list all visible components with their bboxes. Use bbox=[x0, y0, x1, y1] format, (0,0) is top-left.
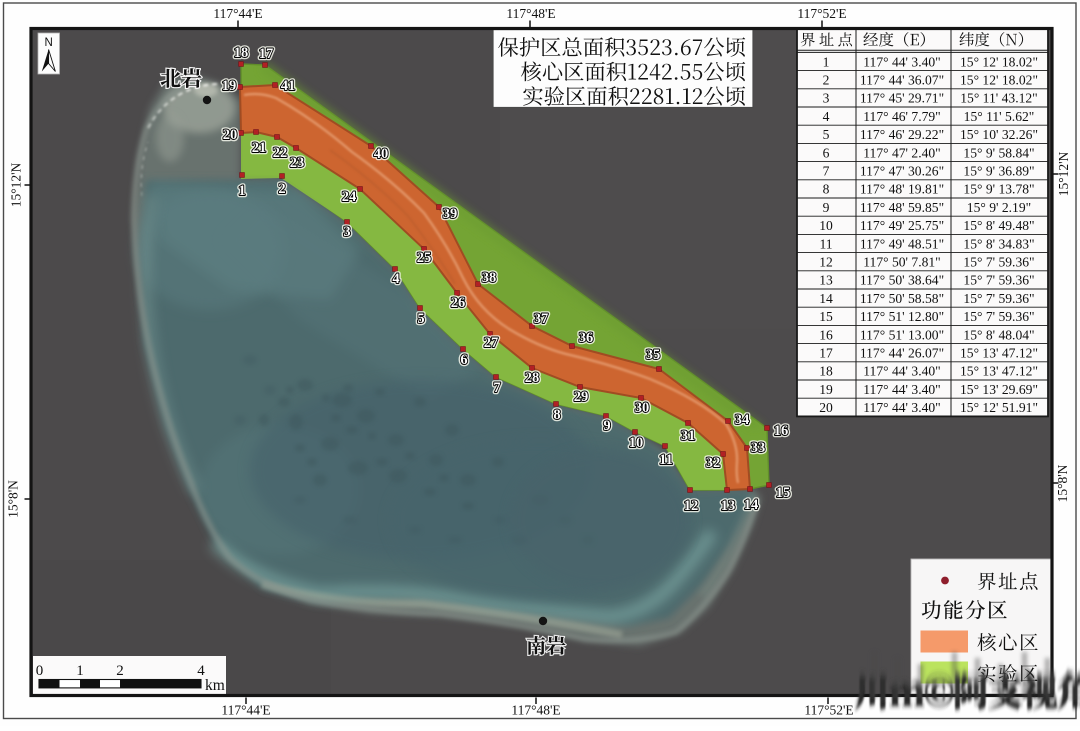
svg-text:3: 3 bbox=[823, 91, 830, 106]
svg-text:15°8'N: 15°8'N bbox=[1055, 464, 1070, 502]
svg-text:18: 18 bbox=[819, 364, 833, 379]
svg-text:15° 12' 51.91": 15° 12' 51.91" bbox=[960, 400, 1038, 415]
svg-text:35: 35 bbox=[646, 347, 661, 363]
svg-text:15° 13' 29.69": 15° 13' 29.69" bbox=[960, 382, 1038, 397]
svg-text:4: 4 bbox=[823, 109, 830, 124]
svg-text:117°44'E: 117°44'E bbox=[213, 6, 262, 21]
svg-text:6: 6 bbox=[460, 352, 467, 368]
svg-text:8: 8 bbox=[553, 407, 560, 423]
svg-text:41: 41 bbox=[281, 78, 296, 94]
svg-text:15°8'N: 15°8'N bbox=[6, 480, 21, 518]
svg-text:15° 9' 2.19": 15° 9' 2.19" bbox=[967, 200, 1031, 215]
svg-text:20: 20 bbox=[819, 400, 833, 415]
svg-text:34: 34 bbox=[735, 412, 750, 428]
svg-text:11: 11 bbox=[819, 236, 832, 251]
svg-text:16: 16 bbox=[774, 423, 789, 439]
svg-text:15° 10' 32.26": 15° 10' 32.26" bbox=[960, 127, 1038, 142]
svg-text:33: 33 bbox=[751, 440, 766, 456]
svg-text:28: 28 bbox=[525, 370, 540, 386]
svg-text:117° 51' 12.80": 117° 51' 12.80" bbox=[860, 309, 944, 324]
svg-text:117° 47' 30.26": 117° 47' 30.26" bbox=[860, 164, 944, 179]
svg-text:117° 49' 48.51": 117° 49' 48.51" bbox=[860, 236, 944, 251]
svg-text:18: 18 bbox=[234, 45, 249, 61]
svg-text:38: 38 bbox=[482, 270, 497, 286]
svg-text:117° 44' 3.40": 117° 44' 3.40" bbox=[863, 364, 941, 379]
svg-text:19: 19 bbox=[819, 382, 833, 397]
svg-text:15° 8' 49.48": 15° 8' 49.48" bbox=[963, 218, 1034, 233]
svg-text:15° 11' 43.12": 15° 11' 43.12" bbox=[960, 91, 1038, 106]
svg-text:30: 30 bbox=[635, 400, 650, 416]
svg-text:7: 7 bbox=[493, 380, 500, 396]
svg-text:14: 14 bbox=[744, 497, 759, 513]
svg-text:4: 4 bbox=[392, 271, 399, 287]
svg-text:15° 11' 5.62": 15° 11' 5.62" bbox=[964, 109, 1035, 124]
svg-text:21: 21 bbox=[252, 140, 267, 156]
svg-text:15° 9' 13.78": 15° 9' 13.78" bbox=[963, 182, 1034, 197]
svg-text:1: 1 bbox=[823, 54, 830, 69]
svg-text:km: km bbox=[205, 677, 225, 694]
svg-text:15° 13' 47.12": 15° 13' 47.12" bbox=[960, 364, 1038, 379]
svg-text:3: 3 bbox=[343, 224, 350, 240]
svg-text:31: 31 bbox=[681, 428, 696, 444]
svg-text:19: 19 bbox=[222, 78, 237, 94]
svg-text:0: 0 bbox=[36, 663, 44, 679]
svg-text:117° 47' 2.40": 117° 47' 2.40" bbox=[863, 145, 941, 160]
svg-text:117° 44' 3.40": 117° 44' 3.40" bbox=[863, 382, 941, 397]
svg-text:20: 20 bbox=[223, 127, 238, 143]
svg-text:15°12'N: 15°12'N bbox=[1056, 151, 1071, 196]
svg-text:27: 27 bbox=[484, 335, 499, 351]
svg-text:15° 13' 47.12": 15° 13' 47.12" bbox=[960, 346, 1038, 361]
svg-text:117° 45' 29.71": 117° 45' 29.71" bbox=[860, 91, 944, 106]
svg-text:29: 29 bbox=[574, 389, 589, 405]
svg-text:2: 2 bbox=[278, 181, 285, 197]
svg-text:117° 44' 3.40": 117° 44' 3.40" bbox=[863, 400, 941, 415]
svg-text:13: 13 bbox=[721, 498, 736, 514]
svg-text:15° 9' 58.84": 15° 9' 58.84" bbox=[963, 145, 1034, 160]
svg-text:11: 11 bbox=[659, 452, 673, 468]
svg-text:6: 6 bbox=[823, 145, 830, 160]
svg-text:12: 12 bbox=[684, 498, 699, 514]
svg-text:40: 40 bbox=[374, 146, 389, 162]
svg-text:9: 9 bbox=[823, 200, 830, 215]
svg-text:15° 7' 59.36": 15° 7' 59.36" bbox=[963, 273, 1034, 288]
svg-text:117° 46' 29.22": 117° 46' 29.22" bbox=[860, 127, 944, 142]
svg-text:15° 8' 48.04": 15° 8' 48.04" bbox=[963, 327, 1034, 342]
svg-text:15° 9' 36.89": 15° 9' 36.89" bbox=[963, 164, 1034, 179]
svg-text:117°48'E: 117°48'E bbox=[511, 703, 560, 718]
svg-text:15: 15 bbox=[819, 309, 833, 324]
svg-text:1: 1 bbox=[238, 183, 245, 199]
svg-text:117° 44' 36.07": 117° 44' 36.07" bbox=[860, 73, 944, 88]
svg-text:23: 23 bbox=[290, 155, 305, 171]
svg-text:117° 49' 25.75": 117° 49' 25.75" bbox=[860, 218, 944, 233]
svg-text:17: 17 bbox=[259, 46, 274, 62]
svg-text:2: 2 bbox=[823, 73, 830, 88]
svg-text:117° 48' 59.85": 117° 48' 59.85" bbox=[860, 200, 944, 215]
svg-text:22: 22 bbox=[273, 145, 288, 161]
svg-text:117° 44' 26.07": 117° 44' 26.07" bbox=[860, 346, 944, 361]
svg-text:15°12'N: 15°12'N bbox=[9, 162, 24, 207]
svg-text:15° 7' 59.36": 15° 7' 59.36" bbox=[963, 291, 1034, 306]
svg-text:117° 46' 7.79": 117° 46' 7.79" bbox=[863, 109, 941, 124]
svg-text:9: 9 bbox=[603, 418, 610, 434]
svg-text:7: 7 bbox=[823, 164, 830, 179]
svg-text:15° 7' 59.36": 15° 7' 59.36" bbox=[963, 309, 1034, 324]
svg-text:117°52'E: 117°52'E bbox=[797, 6, 846, 21]
svg-text:N: N bbox=[44, 37, 52, 49]
svg-text:12: 12 bbox=[819, 255, 833, 270]
svg-text:24: 24 bbox=[342, 189, 357, 205]
svg-text:2: 2 bbox=[116, 663, 124, 679]
svg-text:10: 10 bbox=[819, 218, 833, 233]
svg-text:15° 12' 18.02": 15° 12' 18.02" bbox=[960, 54, 1038, 69]
svg-text:117° 50' 38.64": 117° 50' 38.64" bbox=[860, 273, 944, 288]
svg-text:15° 12' 18.02": 15° 12' 18.02" bbox=[960, 73, 1038, 88]
svg-text:13: 13 bbox=[819, 273, 833, 288]
svg-text:26: 26 bbox=[451, 295, 466, 311]
svg-text:15° 8' 34.83": 15° 8' 34.83" bbox=[963, 236, 1034, 251]
svg-text:5: 5 bbox=[823, 127, 830, 142]
svg-text:117° 50' 7.81": 117° 50' 7.81" bbox=[863, 255, 941, 270]
svg-text:117°48'E: 117°48'E bbox=[506, 6, 555, 21]
svg-text:117°52'E: 117°52'E bbox=[804, 703, 853, 718]
svg-text:5: 5 bbox=[417, 311, 424, 327]
svg-text:117° 50' 58.58": 117° 50' 58.58" bbox=[860, 291, 944, 306]
svg-text:17: 17 bbox=[819, 346, 833, 361]
svg-text:10: 10 bbox=[629, 435, 644, 451]
svg-text:117° 44' 3.40": 117° 44' 3.40" bbox=[863, 54, 941, 69]
svg-text:1: 1 bbox=[76, 663, 84, 679]
svg-text:36: 36 bbox=[579, 330, 594, 346]
svg-text:117° 51' 13.00": 117° 51' 13.00" bbox=[860, 327, 944, 342]
svg-text:15° 7' 59.36": 15° 7' 59.36" bbox=[963, 255, 1034, 270]
svg-text:32: 32 bbox=[706, 455, 721, 471]
svg-text:8: 8 bbox=[823, 182, 830, 197]
svg-text:37: 37 bbox=[534, 311, 549, 327]
svg-text:15: 15 bbox=[776, 485, 791, 501]
svg-text:14: 14 bbox=[819, 291, 833, 306]
svg-text:117° 48' 19.81": 117° 48' 19.81" bbox=[860, 182, 944, 197]
svg-text:16: 16 bbox=[819, 327, 833, 342]
svg-text:117°44'E: 117°44'E bbox=[221, 703, 270, 718]
svg-text:39: 39 bbox=[443, 206, 458, 222]
svg-text:25: 25 bbox=[417, 250, 432, 266]
